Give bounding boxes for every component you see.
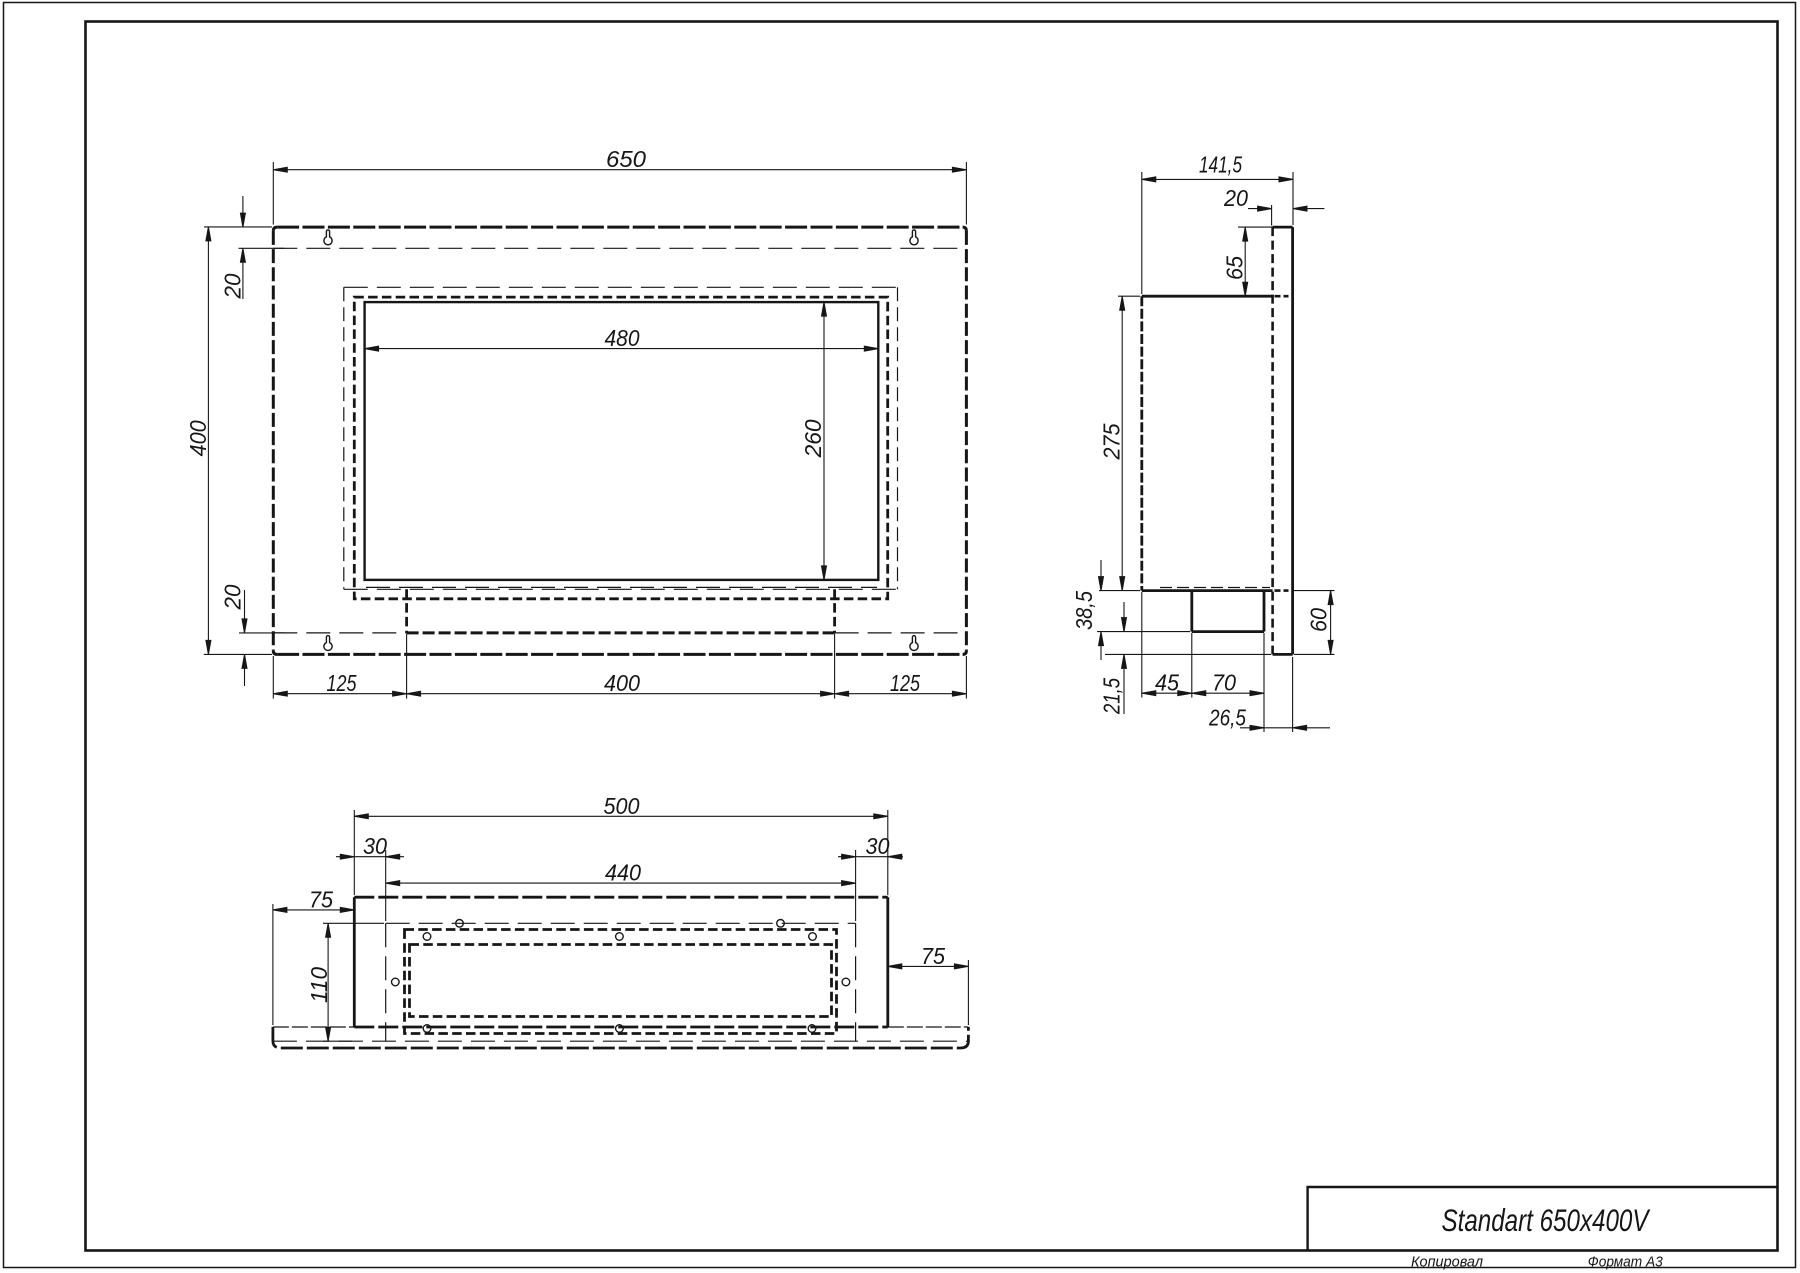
svg-text:650: 650 [606,146,646,172]
svg-text:20: 20 [1223,185,1248,211]
svg-text:65: 65 [1222,256,1248,280]
svg-text:30: 30 [866,833,890,859]
svg-text:75: 75 [309,886,333,912]
svg-text:Копировал: Копировал [1411,1254,1484,1271]
svg-text:38,5: 38,5 [1071,591,1097,630]
svg-text:141,5: 141,5 [1199,152,1242,178]
svg-text:275: 275 [1099,423,1125,460]
svg-text:Формат А3: Формат А3 [1588,1254,1664,1271]
svg-text:45: 45 [1155,670,1179,696]
svg-text:260: 260 [800,419,826,458]
svg-text:400: 400 [185,420,211,456]
svg-text:110: 110 [306,967,332,1003]
svg-text:30: 30 [363,833,387,859]
svg-text:125: 125 [890,670,920,696]
svg-text:125: 125 [327,670,357,696]
svg-text:440: 440 [605,860,641,886]
svg-text:21,5: 21,5 [1099,678,1125,715]
svg-text:26,5: 26,5 [1208,704,1246,730]
svg-text:70: 70 [1212,670,1236,696]
svg-text:400: 400 [604,670,640,696]
svg-text:60: 60 [1306,608,1332,632]
svg-text:20: 20 [220,273,246,299]
svg-text:20: 20 [220,584,246,610]
svg-text:Standart 650x400V: Standart 650x400V [1442,1202,1651,1238]
svg-text:500: 500 [604,793,640,819]
svg-text:75: 75 [921,943,945,969]
svg-text:480: 480 [605,325,640,351]
